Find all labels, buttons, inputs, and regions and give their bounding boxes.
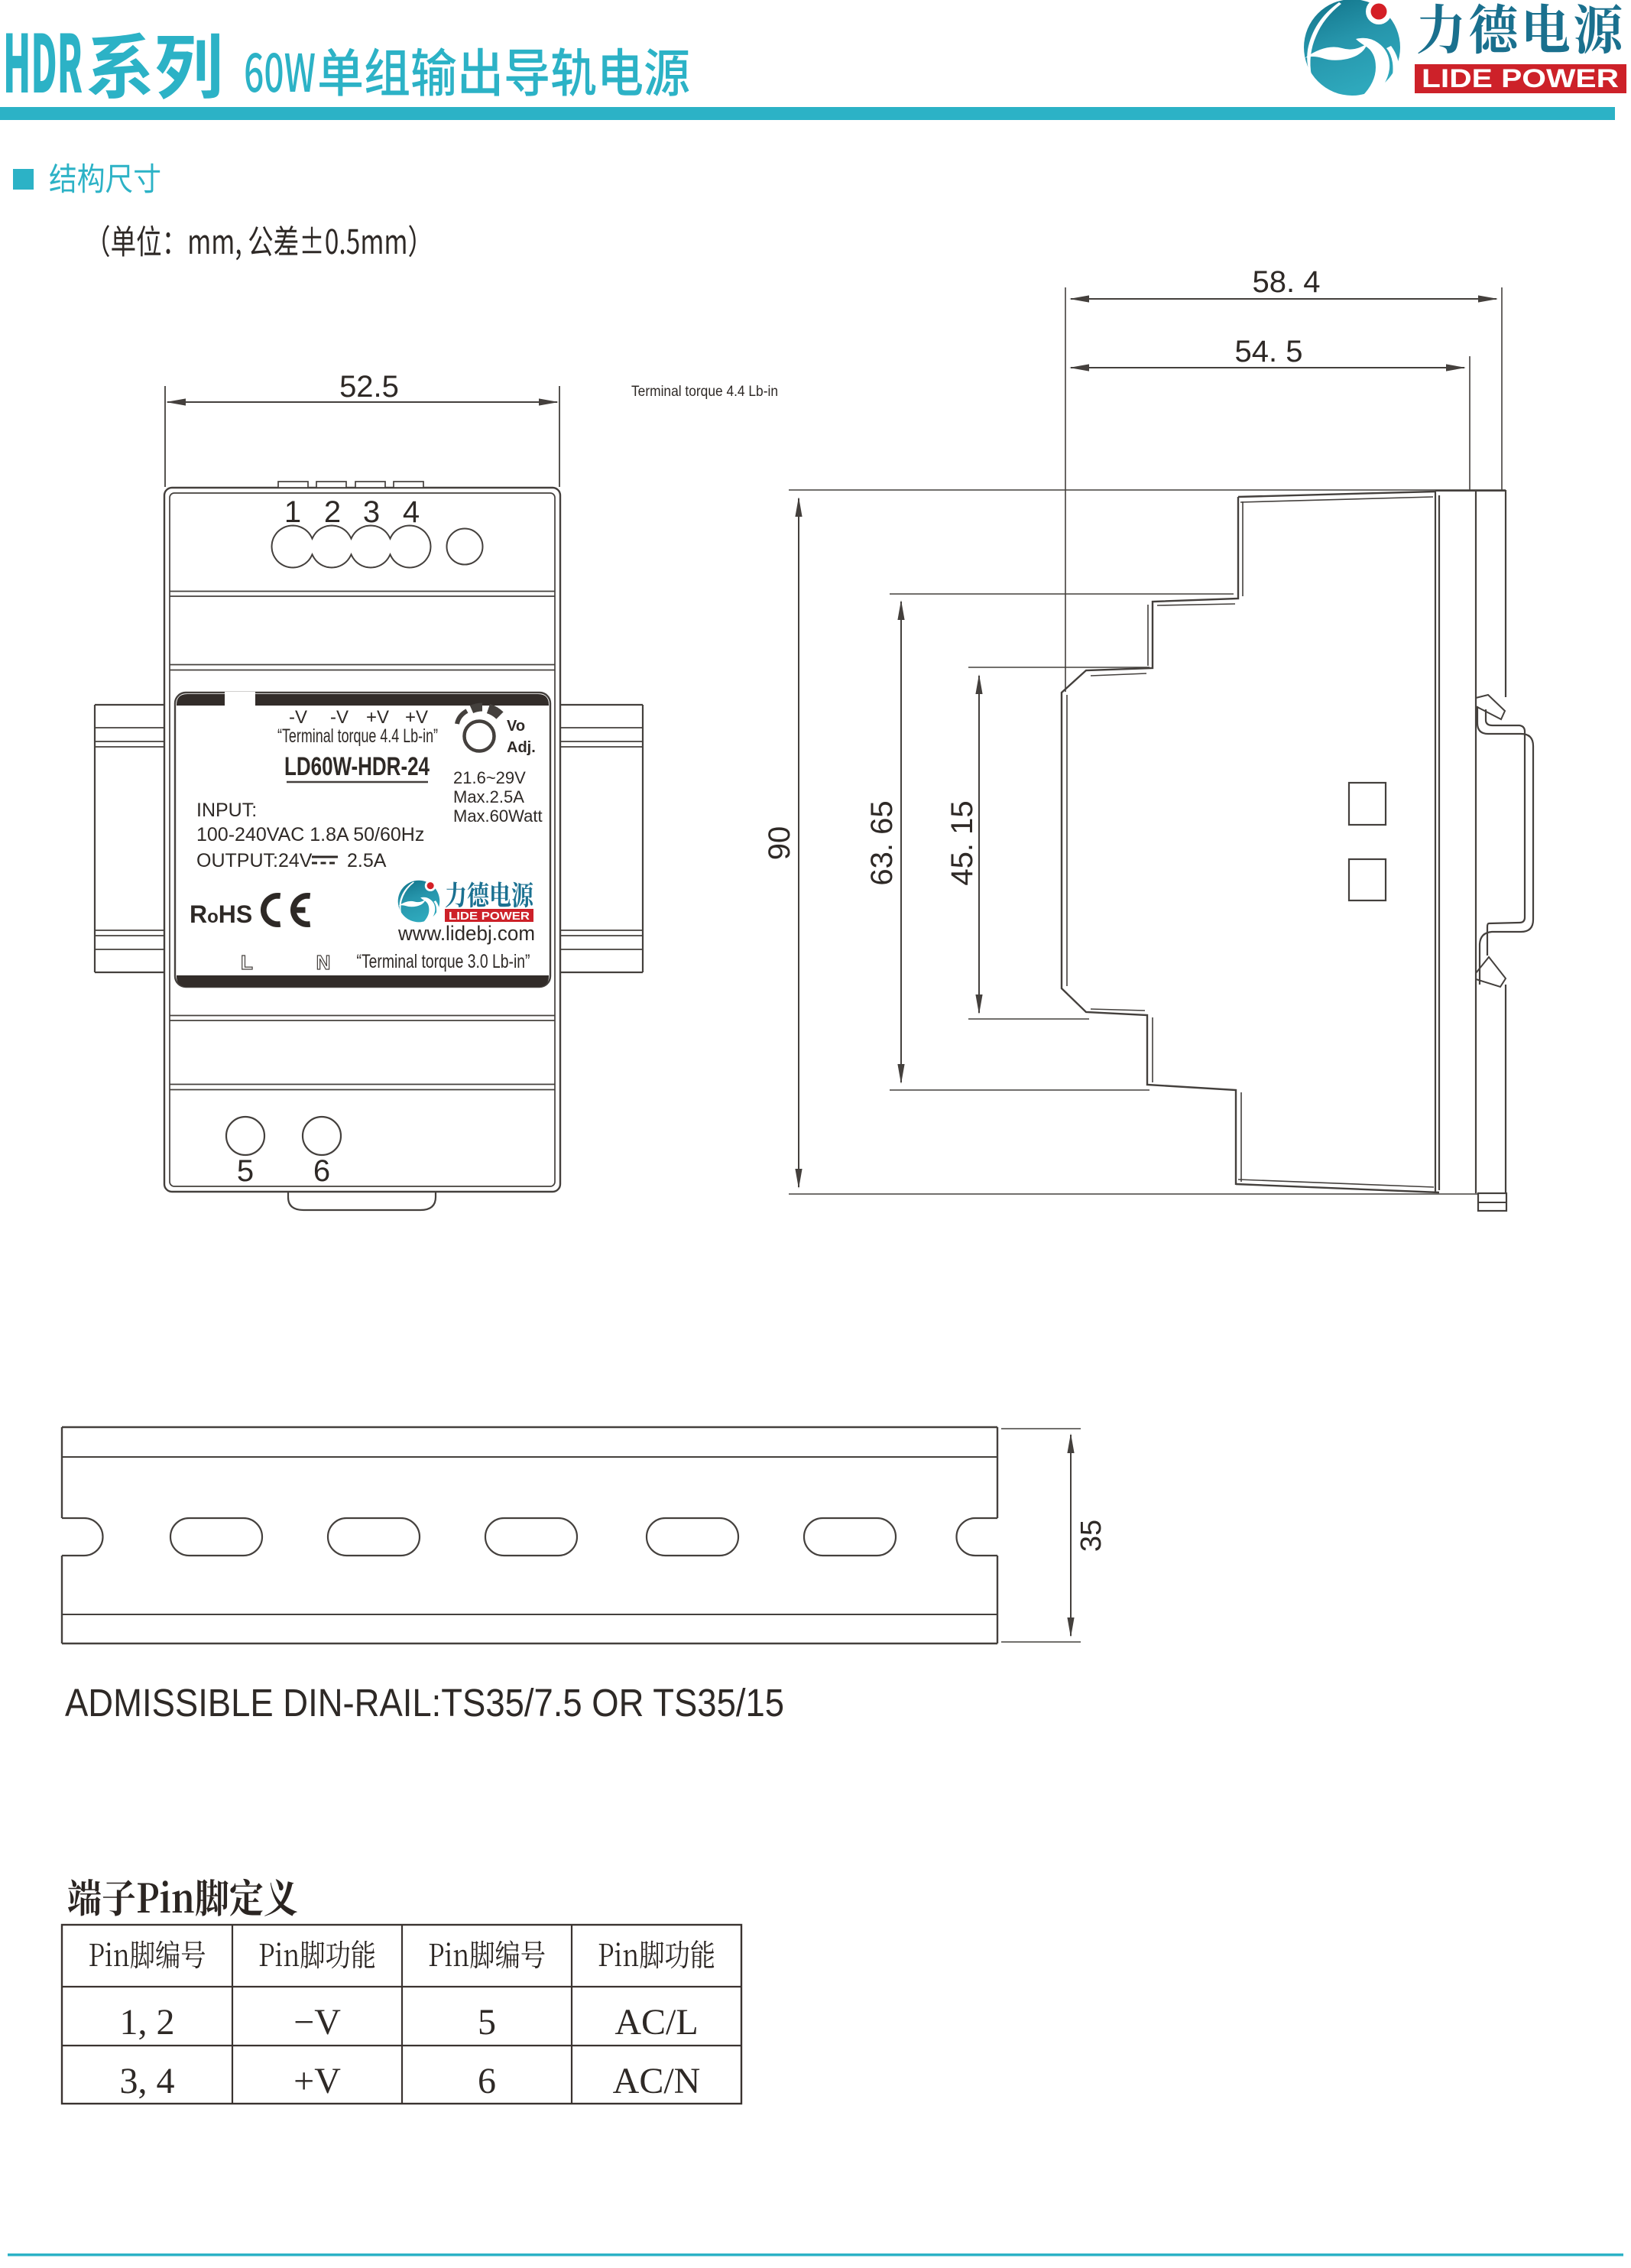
svg-text:+V: +V [293,2061,341,2101]
svg-text:+V: +V [405,707,428,728]
svg-text:3, 4: 3, 4 [120,2061,175,2101]
svg-text:Adj.: Adj. [507,739,536,756]
svg-text:2: 2 [324,495,341,529]
svg-text:AC/N: AC/N [613,2061,701,2101]
svg-text:6: 6 [313,1154,330,1188]
svg-text:−V: −V [293,2002,341,2042]
svg-text:“Terminal torque 3.0 Lb-in”: “Terminal torque 3.0 Lb-in” [357,951,530,972]
svg-text:-V: -V [289,707,307,728]
svg-text:5: 5 [478,2002,496,2042]
svg-text:35: 35 [1075,1520,1107,1552]
svg-text:ADMISSIBLE DIN-RAIL:TS35/7.5 O: ADMISSIBLE DIN-RAIL:TS35/7.5 OR TS35/15 [65,1681,784,1725]
svg-text:58. 4: 58. 4 [1253,265,1321,299]
svg-text:Terminal torque 4.4 Lb-in: Terminal torque 4.4 Lb-in [631,384,778,400]
svg-text:www.lidebj.com: www.lidebj.com [397,922,535,945]
svg-text:4: 4 [403,495,420,529]
svg-text:5: 5 [237,1154,254,1188]
svg-text:100-240VAC 1.8A 50/60Hz: 100-240VAC 1.8A 50/60Hz [196,824,424,845]
svg-text:90: 90 [763,826,796,861]
svg-text:OUTPUT:24V: OUTPUT:24V [196,850,313,871]
svg-text:Vo: Vo [507,718,525,735]
svg-text:1, 2: 1, 2 [120,2002,175,2042]
svg-text:AC/L: AC/L [614,2002,698,2042]
svg-text:54. 5: 54. 5 [1235,335,1303,368]
svg-text:63. 65: 63. 65 [865,800,899,885]
svg-text:LD60W-HDR-24: LD60W-HDR-24 [284,752,430,781]
svg-text:Max.2.5A: Max.2.5A [453,787,524,806]
svg-text:LIDE POWER: LIDE POWER [449,910,530,923]
svg-text:INPUT:: INPUT: [196,800,257,821]
svg-text:3: 3 [363,495,380,529]
svg-text:“Terminal torque 4.4 Lb-in”: “Terminal torque 4.4 Lb-in” [277,725,438,747]
svg-text:-V: -V [330,707,349,728]
svg-text:45. 15: 45. 15 [945,800,979,885]
svg-text:LIDE POWER: LIDE POWER [1422,64,1619,93]
svg-text:N: N [316,951,331,974]
svg-text:52.5: 52.5 [339,370,399,404]
svg-text:1: 1 [284,495,301,529]
svg-text:L: L [241,951,253,974]
svg-text:6: 6 [478,2061,496,2101]
svg-text:+V: +V [366,707,389,728]
svg-text:21.6~29V: 21.6~29V [453,768,526,787]
svg-text:RoHS: RoHS [190,900,252,928]
svg-text:Max.60Watt: Max.60Watt [453,806,543,826]
svg-text:2.5A: 2.5A [347,850,387,871]
